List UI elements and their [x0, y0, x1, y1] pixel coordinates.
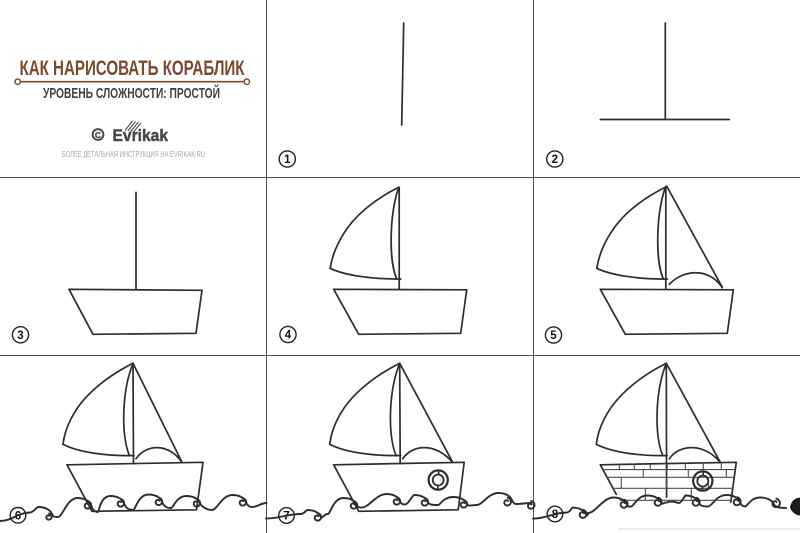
svg-text:КАК НАРИСОВАТЬ КОРАБЛИК: КАК НАРИСОВАТЬ КОРАБЛИК — [20, 56, 246, 80]
svg-text:2: 2 — [552, 154, 558, 166]
svg-text:Evrikak: Evrikak — [113, 127, 169, 145]
svg-text:БОЛЕЕ ДЕТАЛЬНАЯ ИНСТРУКЦИЯ НА: БОЛЕЕ ДЕТАЛЬНАЯ ИНСТРУКЦИЯ НА EVRIKAK.RU — [62, 150, 205, 159]
svg-text:УРОВЕНЬ СЛОЖНОСТИ: ПРОСТОЙ: УРОВЕНЬ СЛОЖНОСТИ: ПРОСТОЙ — [43, 84, 220, 102]
svg-text:5: 5 — [550, 330, 557, 342]
svg-text:4: 4 — [285, 330, 292, 342]
svg-text:C: C — [95, 130, 101, 140]
svg-text:3: 3 — [17, 330, 23, 342]
svg-text:1: 1 — [284, 154, 291, 166]
